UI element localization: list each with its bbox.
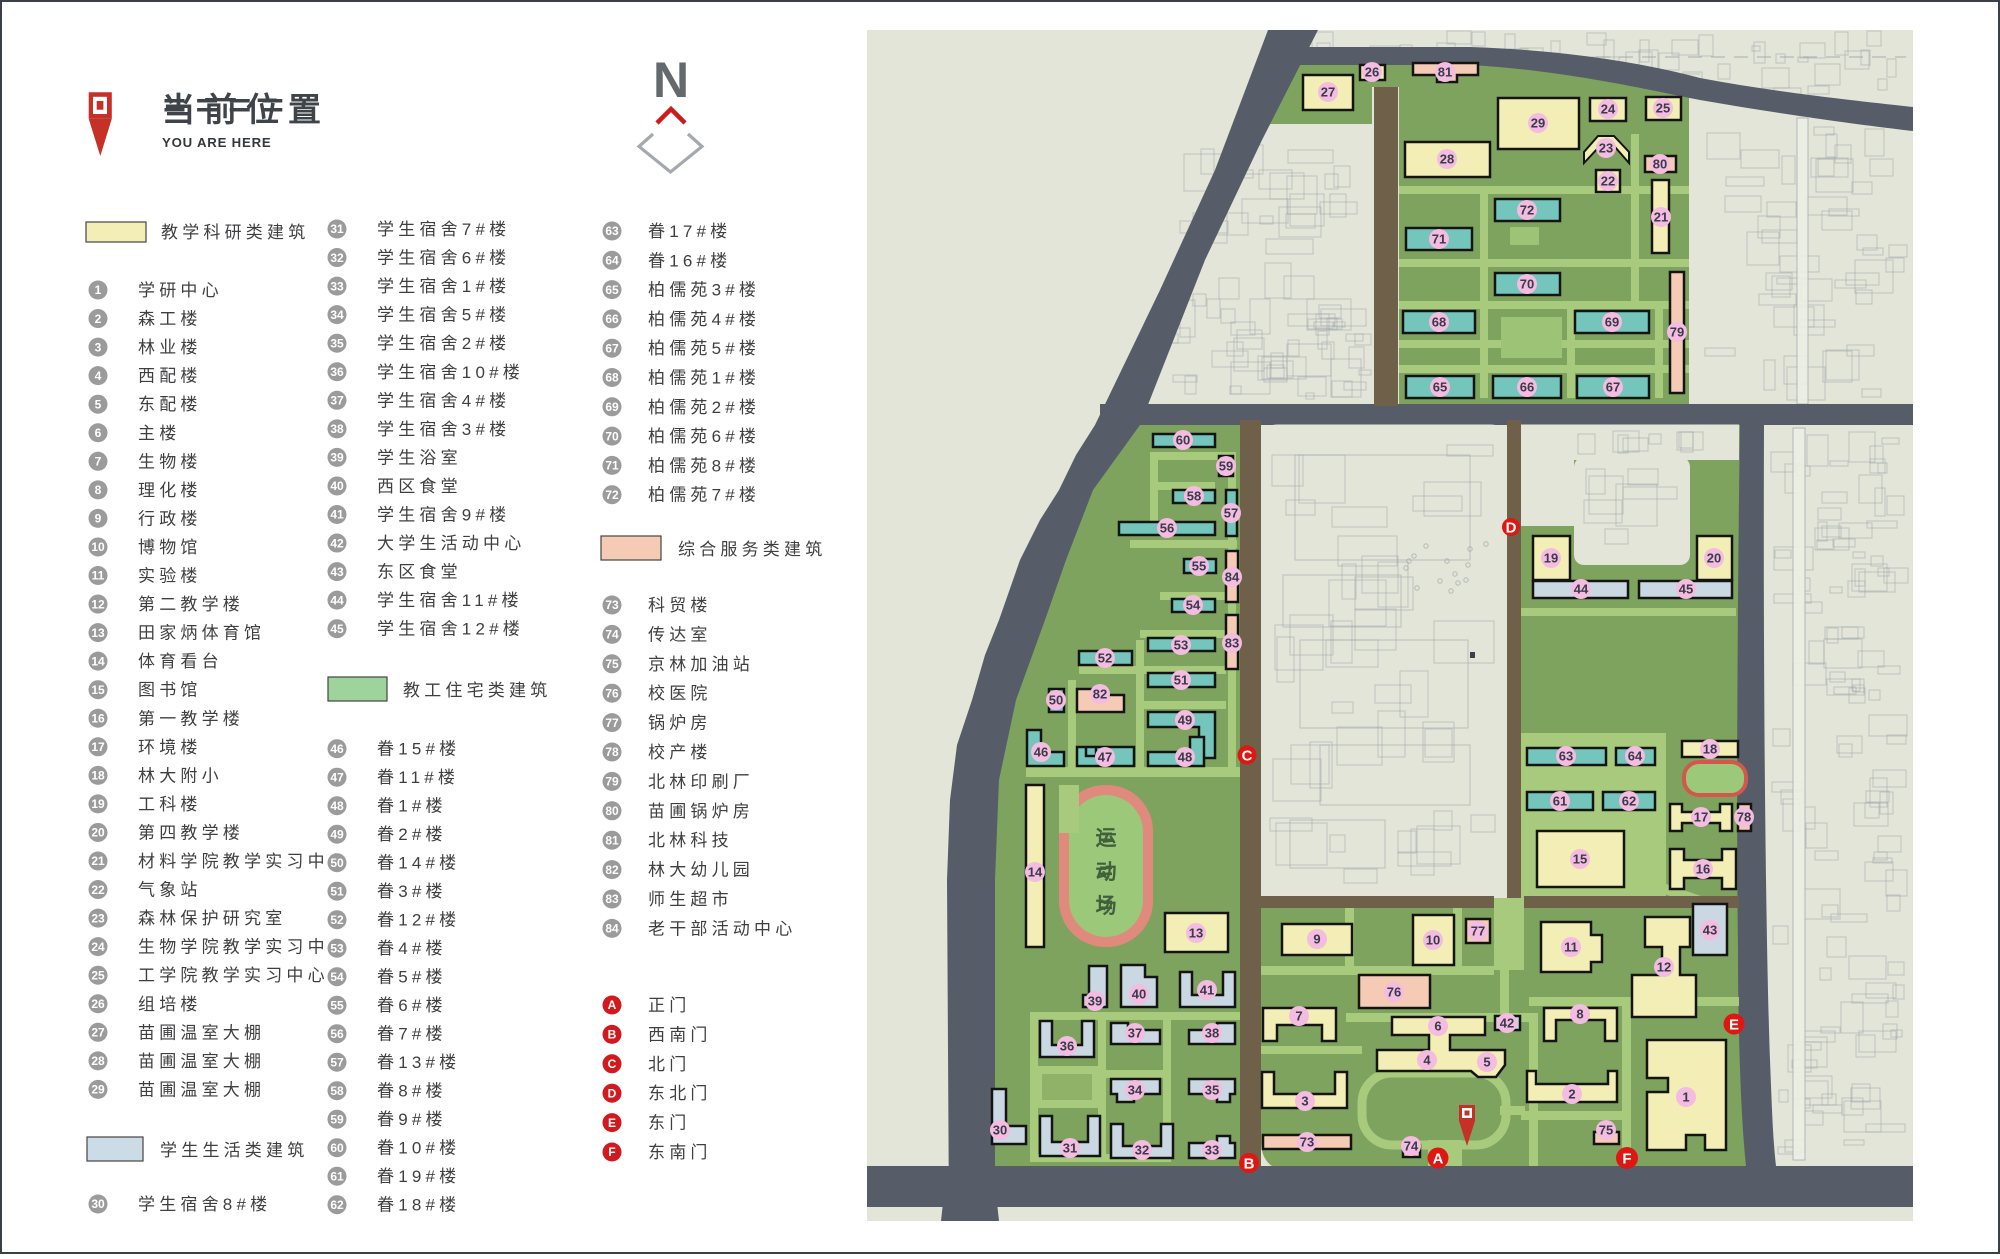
svg-text:67: 67 — [605, 341, 619, 355]
svg-text:77: 77 — [605, 716, 619, 730]
svg-text:18: 18 — [91, 769, 105, 783]
svg-text:森工楼: 森工楼 — [138, 310, 202, 329]
svg-text:62: 62 — [330, 1198, 344, 1212]
svg-text:63: 63 — [1559, 749, 1573, 764]
svg-text:9: 9 — [1313, 932, 1320, 947]
svg-text:36: 36 — [330, 365, 344, 379]
svg-text:31: 31 — [1063, 1141, 1077, 1156]
svg-text:第二教学楼: 第二教学楼 — [138, 595, 244, 614]
svg-text:西南门: 西南门 — [648, 1025, 712, 1044]
svg-text:学生宿舍11#楼: 学生宿舍11#楼 — [377, 591, 523, 610]
svg-text:16: 16 — [91, 711, 105, 725]
svg-text:7: 7 — [95, 455, 102, 469]
svg-text:70: 70 — [1520, 277, 1534, 292]
svg-text:56: 56 — [1160, 521, 1174, 536]
svg-text:环境楼: 环境楼 — [138, 738, 202, 757]
svg-text:82: 82 — [605, 863, 619, 877]
svg-text:柏儒苑5#楼: 柏儒苑5#楼 — [648, 339, 760, 358]
svg-text:22: 22 — [1601, 174, 1615, 189]
svg-text:55: 55 — [330, 998, 344, 1012]
svg-text:77: 77 — [1471, 924, 1485, 939]
svg-text:5: 5 — [95, 397, 102, 411]
svg-text:34: 34 — [330, 308, 344, 322]
svg-text:34: 34 — [1128, 1083, 1143, 1098]
svg-text:学生生活类建筑: 学生生活类建筑 — [160, 1141, 308, 1160]
svg-text:柏儒苑2#楼: 柏儒苑2#楼 — [648, 398, 760, 417]
svg-text:博物馆: 博物馆 — [138, 538, 202, 557]
svg-text:70: 70 — [605, 429, 619, 443]
svg-text:YOU ARE HERE: YOU ARE HERE — [162, 135, 272, 150]
svg-text:学研中心: 学研中心 — [138, 281, 223, 300]
svg-text:柏儒苑4#楼: 柏儒苑4#楼 — [648, 310, 760, 329]
svg-text:22: 22 — [91, 883, 105, 897]
svg-text:30: 30 — [91, 1197, 105, 1211]
svg-text:柏儒苑3#楼: 柏儒苑3#楼 — [648, 281, 760, 300]
svg-text:D: D — [1506, 520, 1517, 537]
svg-text:20: 20 — [91, 826, 105, 840]
svg-text:54: 54 — [330, 970, 344, 984]
svg-text:32: 32 — [330, 251, 344, 265]
svg-text:眷7#楼: 眷7#楼 — [377, 1025, 447, 1044]
svg-text:84: 84 — [1225, 570, 1240, 585]
svg-text:47: 47 — [1098, 750, 1112, 765]
svg-text:第一教学楼: 第一教学楼 — [138, 709, 244, 728]
svg-text:苗圃温室大棚: 苗圃温室大棚 — [138, 1052, 265, 1071]
svg-text:62: 62 — [1622, 794, 1636, 809]
svg-text:80: 80 — [605, 804, 619, 818]
svg-text:76: 76 — [605, 686, 619, 700]
svg-text:59: 59 — [330, 1112, 344, 1126]
svg-text:6: 6 — [1434, 1019, 1441, 1034]
svg-text:67: 67 — [1606, 380, 1620, 395]
svg-text:57: 57 — [1224, 506, 1238, 521]
svg-text:19: 19 — [1544, 551, 1558, 566]
svg-text:42: 42 — [330, 536, 344, 550]
svg-text:眷16#楼: 眷16#楼 — [648, 251, 731, 270]
svg-text:学生宿舍5#楼: 学生宿舍5#楼 — [377, 306, 510, 325]
svg-text:西配楼: 西配楼 — [138, 367, 202, 386]
svg-text:40: 40 — [330, 479, 344, 493]
svg-text:40: 40 — [1132, 987, 1146, 1002]
svg-text:林大附小: 林大附小 — [138, 766, 223, 785]
svg-text:北林科技: 北林科技 — [648, 831, 733, 850]
svg-text:51: 51 — [1174, 673, 1188, 688]
svg-text:26: 26 — [1365, 65, 1379, 80]
svg-text:48: 48 — [330, 799, 344, 813]
svg-text:27: 27 — [91, 1026, 105, 1040]
svg-text:东配楼: 东配楼 — [138, 395, 202, 414]
svg-text:校医院: 校医院 — [648, 684, 712, 703]
svg-text:72: 72 — [1520, 203, 1534, 218]
svg-text:眷15#楼: 眷15#楼 — [377, 740, 460, 759]
svg-text:生物学院教学实习中心: 生物学院教学实习中心 — [138, 938, 350, 957]
svg-text:25: 25 — [1656, 101, 1670, 116]
svg-text:37: 37 — [330, 394, 344, 408]
svg-text:56: 56 — [330, 1027, 344, 1041]
svg-text:15: 15 — [1573, 852, 1587, 867]
svg-text:30: 30 — [993, 1123, 1007, 1138]
svg-text:69: 69 — [1605, 315, 1619, 330]
svg-text:6: 6 — [95, 426, 102, 440]
svg-text:15: 15 — [91, 683, 105, 697]
svg-text:61: 61 — [1553, 794, 1567, 809]
svg-text:73: 73 — [605, 598, 619, 612]
svg-text:65: 65 — [1433, 380, 1447, 395]
svg-text:第四教学楼: 第四教学楼 — [138, 823, 244, 842]
svg-text:84: 84 — [605, 922, 619, 936]
svg-text:24: 24 — [1601, 102, 1616, 117]
svg-text:45: 45 — [1679, 582, 1693, 597]
svg-text:10: 10 — [1426, 933, 1440, 948]
svg-text:25: 25 — [91, 968, 105, 982]
svg-text:眷18#楼: 眷18#楼 — [377, 1196, 460, 1215]
svg-text:32: 32 — [1135, 1143, 1149, 1158]
svg-text:57: 57 — [330, 1055, 344, 1069]
svg-text:50: 50 — [1049, 693, 1063, 708]
svg-text:28: 28 — [91, 1054, 105, 1068]
svg-text:74: 74 — [1404, 1139, 1419, 1154]
svg-text:58: 58 — [330, 1084, 344, 1098]
svg-text:4: 4 — [1423, 1053, 1431, 1068]
svg-text:学生宿舍2#楼: 学生宿舍2#楼 — [377, 334, 510, 353]
svg-text:53: 53 — [330, 941, 344, 955]
svg-text:73: 73 — [1300, 1135, 1314, 1150]
svg-text:学生宿舍12#楼: 学生宿舍12#楼 — [377, 620, 524, 639]
svg-text:17: 17 — [1694, 810, 1708, 825]
svg-text:苗圃温室大棚: 苗圃温室大棚 — [138, 1080, 265, 1099]
svg-text:C: C — [1242, 748, 1253, 765]
svg-text:36: 36 — [1060, 1039, 1074, 1054]
svg-text:学生宿舍3#楼: 学生宿舍3#楼 — [377, 420, 510, 439]
svg-text:图书馆: 图书馆 — [138, 681, 202, 700]
svg-text:55: 55 — [1192, 559, 1206, 574]
svg-text:24: 24 — [91, 940, 105, 954]
svg-text:眷9#楼: 眷9#楼 — [377, 1110, 447, 1129]
svg-text:生物楼: 生物楼 — [138, 452, 202, 471]
svg-text:8: 8 — [95, 483, 102, 497]
svg-text:苗圃锅炉房: 苗圃锅炉房 — [648, 802, 754, 821]
svg-text:眷12#楼: 眷12#楼 — [377, 911, 460, 930]
svg-text:29: 29 — [1531, 116, 1545, 131]
svg-text:学生宿舍6#楼: 学生宿舍6#楼 — [377, 249, 510, 268]
svg-text:14: 14 — [91, 654, 105, 668]
svg-text:眷19#楼: 眷19#楼 — [377, 1167, 460, 1186]
svg-text:体育看台: 体育看台 — [138, 652, 223, 671]
svg-text:北门: 北门 — [648, 1055, 690, 1074]
svg-text:43: 43 — [330, 565, 344, 579]
svg-text:49: 49 — [330, 827, 344, 841]
svg-text:41: 41 — [330, 508, 344, 522]
svg-text:82: 82 — [1093, 687, 1107, 702]
svg-text:林业楼: 林业楼 — [138, 338, 202, 357]
svg-text:东南门: 东南门 — [648, 1143, 712, 1162]
svg-text:学生宿舍8#楼: 学生宿舍8#楼 — [138, 1195, 271, 1214]
svg-text:64: 64 — [605, 254, 619, 268]
svg-text:2: 2 — [1568, 1087, 1575, 1102]
svg-text:54: 54 — [1186, 598, 1201, 613]
svg-text:眷3#楼: 眷3#楼 — [377, 882, 447, 901]
svg-text:眷14#楼: 眷14#楼 — [377, 854, 460, 873]
svg-text:1: 1 — [95, 283, 102, 297]
svg-text:眷17#楼: 眷17#楼 — [648, 222, 731, 241]
svg-text:E: E — [1729, 1017, 1739, 1034]
svg-text:71: 71 — [605, 459, 619, 473]
svg-text:44: 44 — [1574, 582, 1589, 597]
svg-text:D: D — [608, 1086, 617, 1100]
svg-text:教学科研类建筑: 教学科研类建筑 — [161, 223, 309, 242]
svg-text:23: 23 — [91, 911, 105, 925]
svg-text:71: 71 — [1432, 232, 1446, 247]
svg-text:72: 72 — [605, 488, 619, 502]
svg-text:大学生活动中心: 大学生活动中心 — [377, 534, 525, 553]
svg-text:9: 9 — [95, 512, 102, 526]
svg-text:39: 39 — [1088, 994, 1102, 1009]
svg-text:实验楼: 实验楼 — [138, 567, 202, 586]
svg-text:18: 18 — [1703, 742, 1717, 757]
svg-text:柏儒苑8#楼: 柏儒苑8#楼 — [648, 456, 760, 475]
svg-text:44: 44 — [330, 593, 344, 607]
svg-text:F: F — [1622, 1151, 1631, 1168]
svg-text:16: 16 — [1696, 862, 1710, 877]
svg-text:11: 11 — [92, 569, 105, 583]
svg-text:7: 7 — [1295, 1009, 1302, 1024]
svg-text:3: 3 — [95, 340, 102, 354]
svg-text:北林印刷厂: 北林印刷厂 — [648, 772, 754, 791]
svg-text:47: 47 — [330, 770, 344, 784]
svg-text:林大幼儿园: 林大幼儿园 — [648, 861, 754, 880]
svg-text:学生宿舍4#楼: 学生宿舍4#楼 — [377, 391, 510, 410]
svg-text:74: 74 — [605, 628, 619, 642]
svg-text:科贸楼: 科贸楼 — [648, 596, 712, 615]
svg-text:81: 81 — [1438, 65, 1452, 80]
svg-text:20: 20 — [1707, 551, 1721, 566]
svg-text:主楼: 主楼 — [138, 424, 180, 443]
svg-text:理化楼: 理化楼 — [138, 481, 202, 500]
svg-text:51: 51 — [330, 884, 344, 898]
svg-text:79: 79 — [1670, 325, 1684, 340]
svg-text:E: E — [608, 1116, 616, 1130]
svg-text:东门: 东门 — [648, 1114, 690, 1133]
svg-text:21: 21 — [91, 854, 105, 868]
svg-text:5: 5 — [1483, 1055, 1490, 1070]
svg-text:师生超市: 师生超市 — [648, 890, 733, 909]
svg-text:38: 38 — [330, 422, 344, 436]
svg-text:正门: 正门 — [648, 996, 690, 1015]
svg-text:17: 17 — [91, 740, 105, 754]
svg-text:69: 69 — [605, 400, 619, 414]
svg-text:2: 2 — [95, 312, 102, 326]
svg-text:49: 49 — [1178, 713, 1192, 728]
svg-text:B: B — [608, 1028, 617, 1042]
svg-text:48: 48 — [1178, 750, 1192, 765]
svg-text:柏儒苑6#楼: 柏儒苑6#楼 — [648, 427, 760, 446]
svg-text:传达室: 传达室 — [648, 625, 712, 644]
svg-text:68: 68 — [1432, 315, 1446, 330]
svg-text:52: 52 — [330, 913, 344, 927]
svg-text:11: 11 — [1564, 940, 1578, 955]
svg-text:4: 4 — [95, 369, 102, 383]
svg-text:33: 33 — [1205, 1143, 1219, 1158]
svg-text:西区食堂: 西区食堂 — [377, 477, 462, 496]
svg-text:33: 33 — [330, 279, 344, 293]
svg-text:12: 12 — [1657, 960, 1671, 975]
svg-text:气象站: 气象站 — [138, 881, 202, 900]
svg-text:苗圃温室大棚: 苗圃温室大棚 — [138, 1023, 265, 1042]
svg-text:21: 21 — [1654, 210, 1668, 225]
svg-text:81: 81 — [605, 833, 619, 847]
svg-text:23: 23 — [1599, 141, 1613, 156]
svg-text:76: 76 — [1387, 985, 1401, 1000]
svg-text:46: 46 — [1034, 745, 1048, 760]
svg-text:学生浴室: 学生浴室 — [377, 448, 462, 467]
svg-text:柏儒苑7#楼: 柏儒苑7#楼 — [648, 486, 760, 505]
svg-text:79: 79 — [605, 775, 619, 789]
svg-text:学生宿舍9#楼: 学生宿舍9#楼 — [377, 506, 510, 525]
svg-text:52: 52 — [1098, 651, 1112, 666]
svg-text:59: 59 — [1219, 459, 1233, 474]
svg-text:38: 38 — [1205, 1026, 1219, 1041]
svg-text:50: 50 — [330, 856, 344, 870]
svg-text:75: 75 — [605, 657, 619, 671]
svg-text:学生宿舍1#楼: 学生宿舍1#楼 — [377, 277, 510, 296]
svg-text:C: C — [608, 1057, 617, 1071]
svg-text:14: 14 — [1028, 865, 1043, 880]
svg-text:28: 28 — [1440, 152, 1454, 167]
svg-text:78: 78 — [605, 745, 619, 759]
svg-text:41: 41 — [1200, 983, 1214, 998]
svg-text:综合服务类建筑: 综合服务类建筑 — [678, 540, 826, 559]
svg-text:眷13#楼: 眷13#楼 — [377, 1053, 460, 1072]
svg-text:教工住宅类建筑: 教工住宅类建筑 — [403, 681, 551, 700]
svg-text:行政楼: 行政楼 — [138, 509, 202, 528]
svg-text:森林保护研究室: 森林保护研究室 — [138, 909, 286, 928]
svg-text:61: 61 — [330, 1169, 344, 1183]
svg-text:B: B — [1244, 1156, 1255, 1173]
svg-text:东北门: 东北门 — [648, 1084, 712, 1103]
svg-text:校产楼: 校产楼 — [648, 743, 712, 762]
svg-text:工学院教学实习中心: 工学院教学实习中心 — [138, 966, 329, 985]
svg-text:53: 53 — [1174, 638, 1188, 653]
svg-text:眷5#楼: 眷5#楼 — [377, 968, 447, 987]
svg-text:78: 78 — [1737, 810, 1751, 825]
svg-text:A: A — [1433, 1151, 1444, 1168]
svg-text:锅炉房: 锅炉房 — [648, 714, 712, 733]
svg-text:31: 31 — [330, 222, 344, 236]
svg-text:39: 39 — [330, 451, 344, 465]
svg-text:3: 3 — [1301, 1094, 1308, 1109]
svg-text:43: 43 — [1703, 923, 1717, 938]
svg-text:37: 37 — [1128, 1026, 1142, 1041]
svg-text:眷6#楼: 眷6#楼 — [377, 996, 447, 1015]
svg-text:64: 64 — [1628, 749, 1643, 764]
svg-text:46: 46 — [330, 742, 344, 756]
svg-text:83: 83 — [605, 892, 619, 906]
svg-text:10: 10 — [91, 540, 105, 554]
svg-text:田家炳体育馆: 田家炳体育馆 — [138, 624, 265, 643]
svg-text:组培楼: 组培楼 — [138, 995, 202, 1014]
svg-text:工科楼: 工科楼 — [138, 795, 202, 814]
svg-text:26: 26 — [91, 997, 105, 1011]
svg-text:13: 13 — [91, 626, 105, 640]
svg-text:63: 63 — [605, 224, 619, 238]
svg-text:66: 66 — [1520, 380, 1534, 395]
svg-text:眷4#楼: 眷4#楼 — [377, 939, 447, 958]
svg-text:8: 8 — [1576, 1007, 1583, 1022]
svg-text:35: 35 — [330, 336, 344, 350]
svg-text:35: 35 — [1205, 1083, 1219, 1098]
svg-text:60: 60 — [330, 1141, 344, 1155]
svg-text:F: F — [608, 1145, 615, 1159]
svg-text:东区食堂: 东区食堂 — [377, 563, 462, 582]
svg-text:60: 60 — [1176, 433, 1190, 448]
svg-text:13: 13 — [1189, 926, 1203, 941]
svg-text:68: 68 — [605, 371, 619, 385]
svg-text:材料学院教学实习中心: 材料学院教学实习中心 — [138, 852, 350, 871]
svg-text:N: N — [653, 52, 689, 108]
svg-text:58: 58 — [1187, 489, 1201, 504]
svg-text:眷2#楼: 眷2#楼 — [377, 825, 447, 844]
svg-text:27: 27 — [1321, 85, 1335, 100]
svg-text:12: 12 — [91, 597, 105, 611]
svg-text:75: 75 — [1599, 1123, 1613, 1138]
svg-text:83: 83 — [1225, 636, 1239, 651]
svg-text:学生宿舍7#楼: 学生宿舍7#楼 — [377, 220, 510, 239]
svg-text:29: 29 — [91, 1083, 105, 1097]
svg-text:学生宿舍10#楼: 学生宿舍10#楼 — [377, 363, 524, 382]
svg-text:A: A — [608, 998, 617, 1012]
svg-text:老干部活动中心: 老干部活动中心 — [648, 919, 796, 938]
svg-text:65: 65 — [605, 283, 619, 297]
svg-text:眷10#楼: 眷10#楼 — [377, 1139, 460, 1158]
svg-text:柏儒苑1#楼: 柏儒苑1#楼 — [648, 369, 760, 388]
svg-text:80: 80 — [1653, 157, 1667, 172]
svg-text:42: 42 — [1500, 1016, 1514, 1031]
svg-text:眷8#楼: 眷8#楼 — [377, 1082, 447, 1101]
svg-text:45: 45 — [330, 622, 344, 636]
svg-text:66: 66 — [605, 312, 619, 326]
svg-text:眷11#楼: 眷11#楼 — [377, 768, 459, 787]
svg-text:19: 19 — [91, 797, 105, 811]
svg-text:1: 1 — [1682, 1090, 1689, 1105]
svg-text:京林加油站: 京林加油站 — [648, 655, 754, 674]
svg-text:眷1#楼: 眷1#楼 — [377, 797, 447, 816]
